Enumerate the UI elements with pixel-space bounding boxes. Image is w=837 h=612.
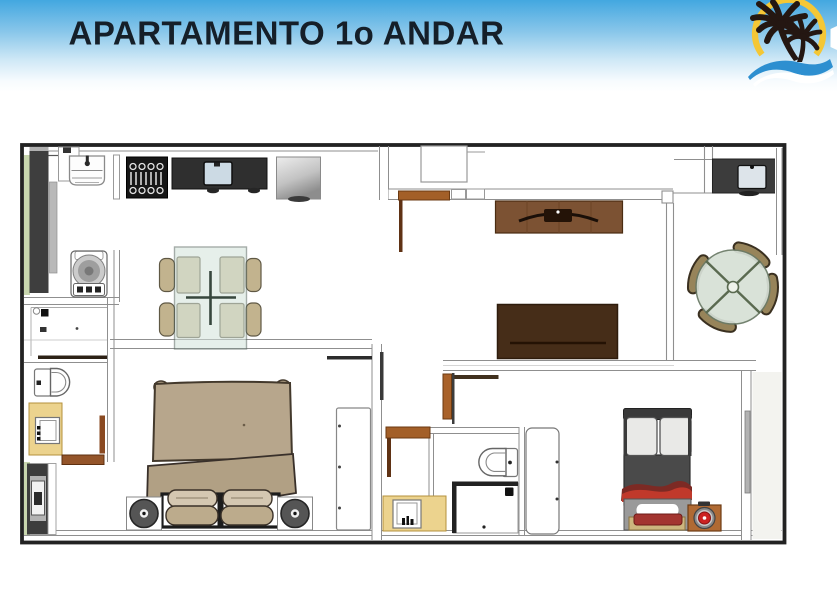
svg-text:APARTAMENTO 1o ANDAR: APARTAMENTO 1o ANDAR bbox=[69, 15, 505, 52]
